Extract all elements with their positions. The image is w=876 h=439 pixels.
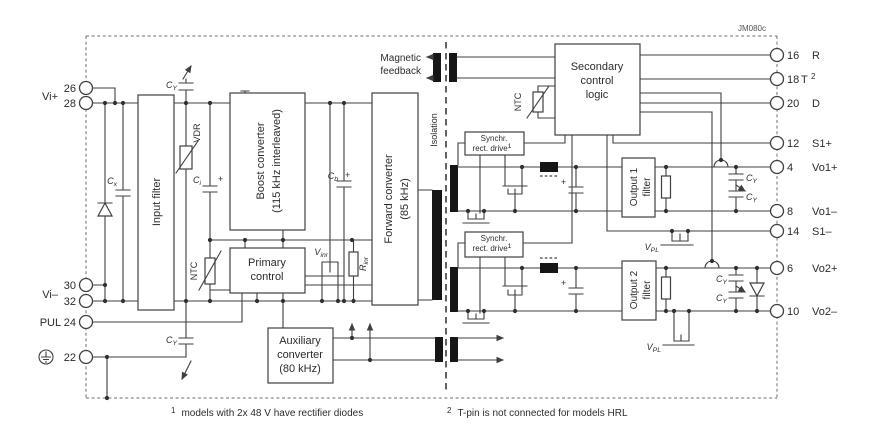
transformer-main xyxy=(418,165,458,312)
output2-filter-label-2: filter xyxy=(642,280,653,300)
resistor-output2 xyxy=(662,268,671,311)
pin-18-name: T xyxy=(801,74,808,86)
output2-filter-label-1: Output 2 xyxy=(629,270,640,309)
sync1-label-2: rect. drive1 xyxy=(473,143,512,153)
capacitor-cb: Cb + xyxy=(328,103,351,301)
block-sync-rect-drive-1: Synchr. rect. drive1 xyxy=(465,132,524,155)
diagram-code: JM080c xyxy=(738,24,766,33)
footnote-2: 2T-pin is not connected for models HRL xyxy=(447,406,628,419)
capacitors-cy-output1: CY CY xyxy=(729,167,758,211)
pin-14-name: S1– xyxy=(812,226,832,238)
ci-plus: + xyxy=(218,174,223,184)
svg-text:12S1+: 12S1+ xyxy=(787,138,832,150)
pin-8-vo1m: 8Vo1– xyxy=(771,205,838,219)
transformer-magnetic-feedback: Magnetic feedback xyxy=(380,53,555,82)
capacitors-cy-output2: CY CY xyxy=(716,268,745,311)
capacitor-output2: + xyxy=(561,268,583,311)
ci-label: Ci xyxy=(193,175,202,187)
cx-label: Cx xyxy=(107,176,118,188)
pin-22-number: 22 xyxy=(64,352,76,364)
circuit-diagram: JM080c Isolation Cx CY VDR Ci + xyxy=(0,0,876,439)
mosfet-sync-rect-2b xyxy=(503,257,527,311)
footnotes: 1models with 2x 48 V have rectifier diod… xyxy=(171,406,628,419)
block-forward-converter: Forward converter (85 kHz) xyxy=(372,93,418,305)
svg-text:16R: 16R xyxy=(787,50,820,62)
transformer-auxiliary xyxy=(333,324,503,362)
sync2-label-2: rect. drive1 xyxy=(473,243,512,253)
block-output1-filter: Output 1 filter xyxy=(622,158,655,217)
pin-28-number: 28 xyxy=(64,98,76,110)
output1-filter-label-1: Output 1 xyxy=(629,167,640,206)
pin-18-number: 18 xyxy=(787,74,799,86)
pin-14-number: 14 xyxy=(787,226,799,238)
secondary-label-2: control xyxy=(580,75,613,87)
pin-6-vo2p: 6Vo2+ xyxy=(771,262,838,276)
capacitor-cy-earth: CY xyxy=(166,301,193,379)
pin-4-vo1p: 4Vo1+ xyxy=(771,161,838,175)
pin-32-number: 32 xyxy=(64,296,76,308)
pin-28: 28 xyxy=(64,97,93,111)
mosfet-sync-rect-2a xyxy=(463,257,489,323)
pin-20-name: D xyxy=(812,98,820,110)
secondary-label-1: Secondary xyxy=(571,61,624,73)
footnote-1: 1models with 2x 48 V have rectifier diod… xyxy=(171,406,363,419)
pin-14-s1m: 14S1– xyxy=(771,225,833,239)
earth-icon xyxy=(39,350,53,364)
cap1-plus: + xyxy=(561,177,566,187)
block-boost-converter: Boost converter (115 kHz interleaved) xyxy=(230,93,305,230)
magnetic-feedback-label-1: Magnetic xyxy=(380,53,421,64)
rinr-label: Rinr xyxy=(358,256,370,271)
pin-6-name: Vo2+ xyxy=(812,263,837,275)
pin-8-number: 8 xyxy=(787,206,793,218)
mosfet-vpl-1: VPL xyxy=(645,231,693,254)
secondary-label-3: logic xyxy=(586,89,609,101)
pin-30-number: 30 xyxy=(64,280,76,292)
vdr-label: VDR xyxy=(192,123,202,143)
block-output2-filter: Output 2 filter xyxy=(622,261,656,320)
ntc-secondary-label: NTC xyxy=(513,92,523,111)
resistor-rinr: Rinr xyxy=(349,240,370,301)
pin-16-number: 16 xyxy=(787,50,799,62)
pin-18-t: 18T2 xyxy=(771,72,817,86)
pin-26: 26 xyxy=(64,82,93,96)
pin-24-pul: PUL 24 xyxy=(40,316,93,330)
svg-text:4Vo1+: 4Vo1+ xyxy=(787,162,837,174)
pin-12-s1p: 12S1+ xyxy=(771,137,832,151)
boost-label-2: (115 kHz interleaved) xyxy=(271,109,283,213)
aux-label-2: converter xyxy=(277,349,323,361)
ntc-primary-label: NTC xyxy=(189,261,199,280)
mosfet-sync-rect-1b xyxy=(503,155,527,211)
cb-label: Cb xyxy=(328,171,339,183)
thermistor-ntc-secondary: NTC xyxy=(513,86,555,118)
forward-label-1: Forward converter xyxy=(383,154,395,244)
mosfet-vinr: Vinr xyxy=(314,103,343,301)
svg-text:14S1–: 14S1– xyxy=(787,226,832,238)
pin-6-number: 6 xyxy=(787,263,793,275)
thermistor-ntc-primary: NTC xyxy=(189,251,230,301)
resistor-output1 xyxy=(662,167,671,211)
pin-4-number: 4 xyxy=(787,162,793,174)
input-filter-label: Input filter xyxy=(151,178,163,227)
diagram-page: JM080c Isolation Cx CY VDR Ci + xyxy=(0,0,876,439)
cy-top-label: CY xyxy=(166,80,178,92)
block-input-filter: Input filter xyxy=(138,95,174,310)
isolation-label: Isolation xyxy=(429,113,439,147)
vi-plus-label: Vi+ xyxy=(42,91,58,103)
pin-12-name: S1+ xyxy=(812,138,832,150)
aux-label-1: Auxiliary xyxy=(279,335,321,347)
boost-label-1: Boost converter xyxy=(255,122,267,199)
pin-4-name: Vo1+ xyxy=(812,162,837,174)
pin-16-r: 16R xyxy=(771,49,821,63)
pin-26-number: 26 xyxy=(64,83,76,95)
output1-filter-label-2: filter xyxy=(642,177,653,197)
svg-text:20D: 20D xyxy=(787,98,820,110)
vi-minus-label: Vi– xyxy=(42,289,59,301)
pin-22-earth: 22 xyxy=(39,350,93,364)
svg-text:8Vo1–: 8Vo1– xyxy=(787,206,838,218)
mosfet-sync-rect-1a xyxy=(463,155,489,223)
cy-o1b-label: CY xyxy=(746,192,758,204)
inductor-output1 xyxy=(540,162,558,176)
left-pins: 26 28 Vi+ 30 32 Vi– PUL 24 22 xyxy=(39,82,93,365)
pin-18-footnote-ref: 2 xyxy=(811,72,816,81)
vinr-label: Vinr xyxy=(314,247,328,259)
pin-20-number: 20 xyxy=(787,98,799,110)
block-secondary-control-logic: Secondary control logic xyxy=(555,44,640,135)
input-diode xyxy=(98,103,112,301)
primary-control-label-2: control xyxy=(250,271,283,283)
magnetic-feedback-label-2: feedback xyxy=(380,66,422,77)
suppressor-diode xyxy=(750,268,764,311)
pin-10-number: 10 xyxy=(787,306,799,318)
pin-32: 32 xyxy=(64,295,93,309)
cy-o2a-label: CY xyxy=(716,274,728,286)
inductor-output2 xyxy=(540,258,558,273)
svg-text:18T2: 18T2 xyxy=(787,72,816,86)
pin-8-name: Vo1– xyxy=(812,206,838,218)
primary-control-label-1: Primary xyxy=(248,257,286,269)
pin-10-name: Vo2– xyxy=(812,306,838,318)
pin-16-name: R xyxy=(812,50,820,62)
block-sync-rect-drive-2: Synchr. rect. drive1 xyxy=(465,232,523,257)
svg-text:10Vo2–: 10Vo2– xyxy=(787,306,838,318)
sync1-label-1: Synchr. xyxy=(481,134,508,143)
pin-30: 30 xyxy=(64,279,93,293)
capacitor-cx: Cx xyxy=(107,103,130,301)
vpl1-label: VPL xyxy=(645,242,660,254)
svg-text:6Vo2+: 6Vo2+ xyxy=(787,263,837,275)
cy-o1a-label: CY xyxy=(746,173,758,185)
vpl2-label: VPL xyxy=(647,342,662,354)
forward-label-2: (85 kHz) xyxy=(399,178,411,220)
pul-label: PUL 24 xyxy=(40,317,76,329)
cy-earth-label: CY xyxy=(166,335,178,347)
cb-plus: + xyxy=(345,170,350,180)
sync2-label-1: Synchr. xyxy=(481,234,508,243)
pin-12-number: 12 xyxy=(787,138,799,150)
cy-o2b-label: CY xyxy=(716,293,728,305)
cap2-plus: + xyxy=(561,278,566,288)
pin-20-d: 20D xyxy=(771,97,821,111)
block-primary-control: Primary control xyxy=(230,248,305,293)
right-pins: 16R 18T2 20D 12S1+ 4Vo1+ 8Vo1– 14S1– 6V xyxy=(771,49,838,319)
aux-label-3: (80 kHz) xyxy=(279,363,321,375)
pin-10-vo2m: 10Vo2– xyxy=(771,305,838,319)
block-auxiliary-converter: Auxiliary converter (80 kHz) xyxy=(268,328,333,383)
